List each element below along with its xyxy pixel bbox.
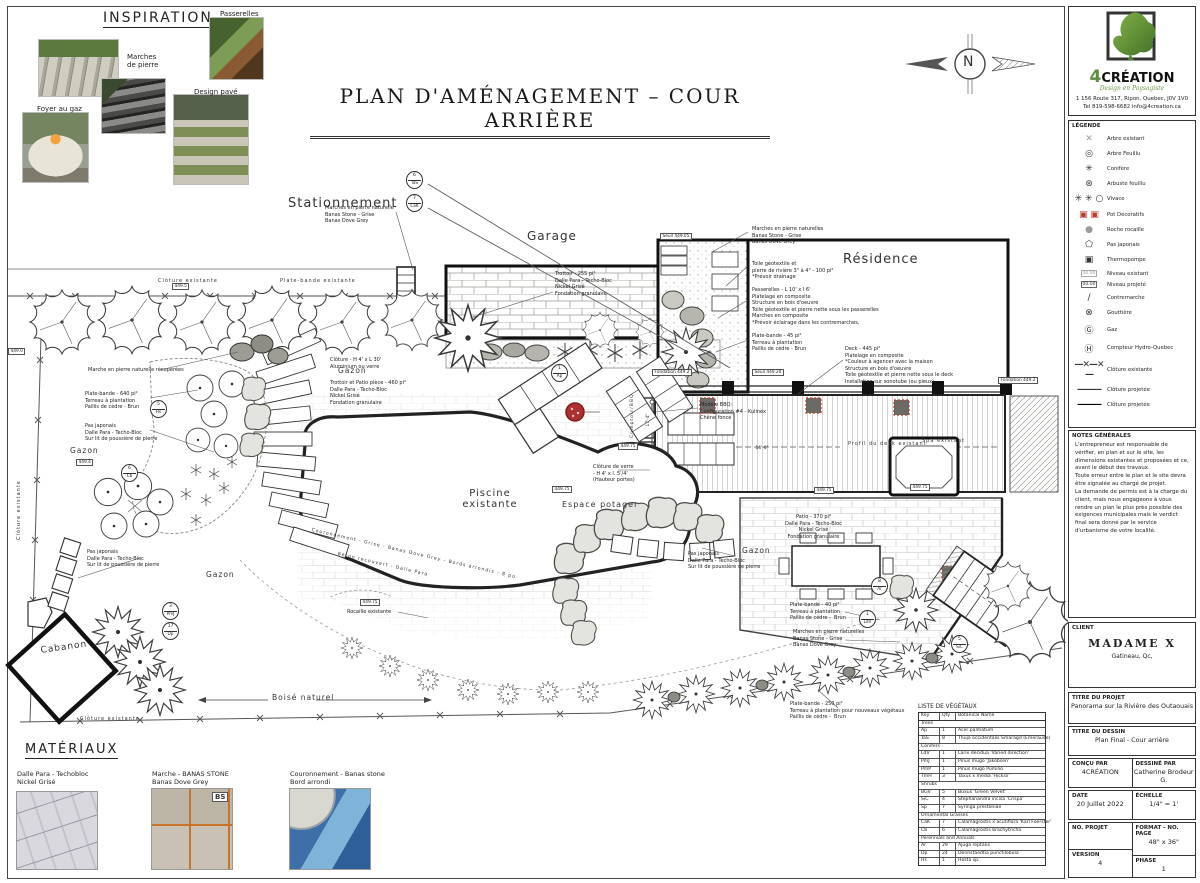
legend-symbol-icon: ▣ — [1071, 255, 1107, 265]
legend-row: Ⓖ Gaz — [1071, 323, 1193, 336]
plant-key: SiC — [919, 797, 940, 804]
client-name: MADAME X — [1069, 637, 1195, 650]
annotation: Clôture - H 4' x L 30' Aluminium ou verr… — [330, 357, 381, 370]
plant-key: CaK — [919, 820, 940, 827]
level-marker: Seuil 449.20 — [752, 369, 784, 376]
legend-label: Thermopompe — [1107, 257, 1146, 263]
level-marker: Fondation 449.2 — [998, 377, 1038, 384]
plan-label: Clôture existante — [80, 716, 140, 722]
drawing-title: Plan Final - Cour arrière — [1069, 735, 1195, 746]
plant-key: Hs — [919, 858, 940, 865]
legend-symbol-icon: ⬠ — [1071, 240, 1107, 250]
callout-key: SiC — [953, 644, 966, 649]
callout-qty: 6 — [407, 172, 422, 179]
plant-name: Calamagrostis brachytricha — [956, 828, 1045, 835]
legend-row: ✳ Conifère — [1071, 164, 1193, 174]
plant-row: Dp 24 Dennstaedtia punctilobula — [919, 850, 1045, 858]
general-notes-body: L'entrepreneur est responsable de vérifi… — [1069, 439, 1195, 539]
level-marker: Fondation 449.2 — [652, 369, 692, 376]
annotation: Plate-bande - 40 pi² Terreau à plantatio… — [790, 602, 846, 622]
plan-label: Comptoir/BBQ — [630, 393, 635, 438]
plant-qty: 7 — [940, 805, 956, 812]
phase-value: 1 — [1133, 864, 1196, 873]
plant-row: PmJ 1 Pinus mugo 'Jakobsen' — [919, 758, 1045, 766]
plant-callout: 5 Hs — [150, 400, 167, 418]
plan-label: Résidence — [843, 252, 918, 267]
legend-symbol-icon: Ⓗ — [1071, 342, 1107, 355]
plant-row: Ap 1 Acer palmatum — [919, 727, 1045, 735]
legend-label: Compteur Hydro-Quebec — [1107, 345, 1173, 351]
plant-name: Ajuga reptans — [956, 843, 1045, 850]
annotation: Pas japonais Dalle Para - Techo-Bloc Sur… — [85, 423, 157, 443]
plant-key: PmP — [919, 767, 940, 774]
legend-row: ✕ Arbre existant — [1071, 134, 1193, 144]
legend-label: Pot Décoratifs — [1107, 212, 1144, 218]
callout-qty: 7 — [407, 195, 422, 202]
callout-qty: 3 — [163, 603, 178, 610]
callout-qty: 6 — [122, 465, 137, 472]
material-label: Marche - BANAS STONE Banas Dove Grey — [152, 770, 229, 787]
plant-callout: 6 Cb — [121, 464, 138, 482]
callout-qty: 17 — [163, 623, 178, 630]
legend-symbol-icon: ∕ — [1071, 293, 1107, 303]
callout-key: Ap — [553, 373, 566, 378]
legend-symbol-icon: ——— — [1071, 385, 1107, 395]
designed-by: 4CRÉATION — [1069, 767, 1132, 776]
plant-name: Larix decidua 'Varied direction' — [956, 751, 1045, 758]
legend-row: ▣ Thermopompe — [1071, 255, 1193, 265]
plant-qty: 1 — [940, 751, 956, 758]
general-notes-title: NOTES GÉNÉRALES — [1069, 431, 1195, 439]
plant-qty: 1 — [940, 858, 956, 865]
project-title-block: TITRE DU PROJET Panorama sur la Rivière … — [1068, 692, 1196, 724]
level-marker: 449.75 — [814, 487, 834, 494]
plant-qty: 8 — [940, 736, 956, 743]
plant-callout: 17 Dp — [162, 622, 179, 640]
material-photo-dalle-para — [17, 792, 97, 869]
plant-name: Pinus mugo 'Jakobsen' — [956, 759, 1045, 766]
legend-symbol-icon: ——— — [1071, 400, 1107, 410]
legend-row: ⬠ Pas japonais — [1071, 240, 1193, 250]
plant-key: Ornamental Grasses — [919, 813, 970, 820]
callout-key: Hs — [152, 409, 165, 414]
plant-callout: 7 CaK — [406, 194, 423, 212]
plant-qty: 7 — [940, 820, 956, 827]
number-block: NO. PROJET VERSION 4 FORMAT - NO. PAGE 4… — [1068, 822, 1196, 878]
callout-key: Dp — [164, 631, 177, 636]
level-marker: 449.75 — [360, 599, 380, 606]
inspiration-photo-dark-steps — [102, 79, 165, 133]
legend-symbol-icon: 00.00 — [1071, 282, 1107, 287]
plant-row: TmH 3 Taxus x media 'Hicksii' — [919, 773, 1045, 781]
scale-value: 1/4" = 1' — [1133, 799, 1196, 808]
plant-key: Shrubs — [919, 782, 939, 789]
client-city: Gatineau, Qc, — [1069, 653, 1195, 660]
inspiration-label: Passerelles — [220, 10, 259, 18]
plan-label: Garage — [527, 229, 577, 243]
legend-row: —✕—✕— Clôture existante — [1071, 360, 1193, 380]
annotation: Rocaille existante — [347, 609, 391, 616]
plant-qty: 1 — [940, 759, 956, 766]
annotation: Patio - 370 pi² Dalle Para - Techo-Bloc … — [785, 514, 842, 540]
legend-label: Arbuste feuillu — [1107, 181, 1146, 187]
inspiration-photo-fire-bowl — [23, 113, 88, 182]
plant-qty: 24 — [940, 851, 956, 858]
plant-row: LdV 1 Larix decidua 'Varied direction' — [919, 750, 1045, 758]
plant-name: Acer palmatum — [956, 728, 1045, 735]
legend-symbol-icon: ● — [1071, 225, 1107, 235]
annotation: Pas japonais Dalle Para - Techo-Bloc Sur… — [87, 549, 159, 569]
plant-row: Hs 1 Hosta sp. — [919, 857, 1045, 865]
annotation: Plate-bande - 250 pi² Terreau à plantati… — [790, 701, 904, 721]
inspiration-photo-paver-design — [174, 95, 248, 184]
plant-key: Sp — [919, 805, 940, 812]
level-marker: 449.5 — [172, 283, 189, 290]
annotation: Marche en pierre naturelle récupérées — [88, 367, 184, 374]
plant-row: Ornamental Grasses — [919, 812, 1045, 820]
legend-label: Pas japonais — [1107, 242, 1140, 248]
plant-list: LISTE DE VÉGÉTAUX Key Qty Botanical Name… — [918, 704, 1046, 866]
plant-key: Dp — [919, 851, 940, 858]
annotation: Plate-bande - 640 pi² Terreau à plantati… — [85, 391, 139, 411]
legend-symbol-icon: ▣ ▣ — [1071, 210, 1107, 220]
legend-row: ◎ Arbre Feuillu — [1071, 149, 1193, 159]
plant-list-title: LISTE DE VÉGÉTAUX — [918, 704, 1046, 710]
plan-label: Piscine existante — [450, 488, 530, 510]
legend-row: ● Roche rocaille — [1071, 225, 1193, 235]
date-value: 20 Juillet 2022 — [1069, 799, 1132, 808]
callout-qty: 5 — [952, 636, 967, 643]
plant-row: Ar 29 Ajuga reptans — [919, 842, 1045, 850]
plant-callout: 6 TaS — [406, 171, 423, 189]
level-marker: 449.75 — [910, 484, 930, 491]
plant-key: Perennials and Annuals — [919, 836, 977, 843]
plant-name: Hosta sp. — [956, 858, 1045, 865]
annotation: Plate-bande - 45 pi² Terreau à plantatio… — [752, 333, 806, 353]
banas-stone-logo: BS — [212, 792, 228, 802]
brand-name: 4CRÉATION — [1069, 67, 1195, 87]
plan-label: N — [963, 54, 974, 70]
plant-callout: 5 SiC — [951, 635, 968, 653]
annotation: Trottoir et Patio pièce - 460 pi² Dalle … — [330, 380, 406, 406]
inspiration-title: INSPIRATION — [103, 10, 213, 28]
drawing-sheet: PLAN D'AMÉNAGEMENT – COUR ARRIÈRE INSPIR… — [0, 0, 1200, 883]
legend-block: LÉGENDE ✕ Arbre existant ◎ Arbre Feuillu… — [1068, 120, 1196, 428]
inspiration-label: Foyer au gaz — [37, 105, 82, 113]
plant-key: Conifers — [919, 744, 942, 751]
designer-block: CONÇU PAR 4CRÉATION DESSINÉ PAR Catherin… — [1068, 758, 1196, 788]
legend-label: Contremarche — [1107, 295, 1145, 301]
plant-row: Shrubs — [919, 781, 1045, 789]
plant-list-header: Key Qty Botanical Name — [919, 713, 1045, 721]
plant-qty: 1 — [940, 767, 956, 774]
plant-name: Pinus mugo Pumilio — [956, 767, 1045, 774]
plant-qty: 4 — [940, 797, 956, 804]
plant-row: BGV 5 Buxus 'Green Velvet' — [919, 789, 1045, 797]
plant-key: Ar — [919, 843, 940, 850]
plant-callout: 1 Ap — [551, 364, 568, 382]
legend-row: ⊗ Gouttière — [1071, 308, 1193, 318]
level-marker: 14'-6" — [754, 446, 770, 451]
legend-row: ——— Clôture projetée — [1071, 400, 1193, 410]
callout-key: CaK — [408, 203, 421, 208]
legend-symbol-icon: ⊗ — [1071, 308, 1107, 318]
plant-name: Stephanandra incisa 'Crispa' — [956, 797, 1045, 804]
legend-symbol-icon: —✕—✕— — [1071, 360, 1107, 380]
annotation: Trottoir - 255 pi² Dalle Para - Techo-Bl… — [555, 271, 612, 297]
plant-qty: 3 — [940, 774, 956, 781]
legend-label: Conifère — [1107, 166, 1129, 172]
plant-row: Trees — [919, 721, 1045, 728]
plant-row: TaS 8 Thuja occidentalis Smaragd (Emerau… — [919, 735, 1045, 743]
legend-row: ——— Clôture projetée — [1071, 385, 1193, 395]
annotation: Marches en pierre naturelle Banas Stone … — [325, 205, 394, 225]
date-scale-block: DATE 20 Juillet 2022 ÉCHELLE 1/4" = 1' — [1068, 790, 1196, 820]
legend-row: ▣ ▣ Pot Décoratifs — [1071, 210, 1193, 220]
level-marker: 449.75 — [618, 443, 638, 450]
plan-label: Gazon — [70, 446, 99, 455]
legend-label: Gaz — [1107, 327, 1117, 333]
legend-label: Vivace — [1107, 196, 1125, 202]
plan-label: Plate-bande existante — [280, 278, 356, 284]
brand-tagline: Design en Paysagiste — [1069, 85, 1195, 92]
page-title: PLAN D'AMÉNAGEMENT – COUR ARRIÈRE — [310, 84, 770, 139]
legend-label: Clôture existante — [1107, 367, 1152, 373]
annotation: Passerelles - L 10' x l 6' Platelage en … — [752, 287, 879, 326]
plant-name: Buxus 'Green Velvet' — [956, 790, 1045, 797]
plant-key: TmH — [919, 774, 940, 781]
inspiration-label: Design pavé — [194, 88, 238, 96]
legend-title: LÉGENDE — [1069, 121, 1195, 129]
plant-name: Taxus x media 'Hicksii' — [956, 774, 1045, 781]
legend-symbol-icon: ✳ ✳ ○ — [1071, 194, 1107, 204]
plan-label: Gazon — [206, 570, 235, 579]
legend-symbol-icon: Ⓖ — [1071, 323, 1107, 336]
plant-row: Cb 6 Calamagrostis brachytricha — [919, 827, 1045, 835]
plant-qty: 1 — [940, 728, 956, 735]
legend-row: ⊛ Arbuste feuillu — [1071, 179, 1193, 189]
annotation: Toile géotextile et pierre de rivière 3"… — [752, 261, 833, 281]
company-address: 1 156 Route 317, Ripon, Quebec, J0V 1V0 … — [1069, 95, 1195, 111]
plant-row: Sp 7 Syringa prestoniae — [919, 804, 1045, 812]
plan-label: Boisé naturel — [272, 693, 334, 702]
legend-symbol-icon: ✳ — [1071, 164, 1107, 174]
annotation: Clôture de verre - H 4' x l. 5'/4' (Haut… — [593, 464, 635, 484]
general-notes-block: NOTES GÉNÉRALES L'entrepreneur est respo… — [1068, 430, 1196, 618]
plant-qty: 5 — [940, 790, 956, 797]
callout-qty: 1 — [552, 365, 567, 372]
plant-key: TaS — [919, 736, 940, 743]
legend-row: 00.00 Niveau existant — [1071, 271, 1193, 277]
plant-row: Conifers — [919, 743, 1045, 751]
callout-qty: 8 — [872, 578, 887, 585]
material-label: Couronnement - Banas stone Bord arrondi — [290, 770, 385, 787]
plant-name: Dennstaedtia punctilobula — [956, 851, 1045, 858]
legend-symbol-icon: 00.00 — [1071, 271, 1107, 276]
legend-symbol-icon: ◎ — [1071, 149, 1107, 159]
legend-row: 00.00 Niveau projeté — [1071, 282, 1193, 288]
plant-name: Thuja occidentalis Smaragd (Emeraude) — [956, 736, 1052, 743]
material-photo-couronnement — [290, 789, 370, 869]
plant-key: PmJ — [919, 759, 940, 766]
legend-label: Roche rocaille — [1107, 227, 1144, 233]
callout-key: TaS — [408, 180, 421, 185]
materials-title: MATÉRIAUX — [25, 742, 118, 759]
legend-label: Niveau projeté — [1107, 282, 1146, 288]
legend-label: Niveau existant — [1107, 271, 1148, 277]
legend-label: Gouttière — [1107, 310, 1132, 316]
plant-key: BGV — [919, 790, 940, 797]
plant-key: Ap — [919, 728, 940, 735]
legend-label: Arbre existant — [1107, 136, 1144, 142]
plant-name: Calamagrostis x acutiflora 'Karl Foerste… — [956, 820, 1053, 827]
legend-label: Clôture projetée — [1107, 402, 1150, 408]
callout-key: LdV — [861, 619, 874, 624]
legend-row: ✳ ✳ ○ Vivace — [1071, 194, 1193, 204]
level-marker: 449.0 — [8, 348, 25, 355]
plant-callout: 8 Ar — [871, 577, 888, 595]
legend-symbol-icon: ✕ — [1071, 134, 1107, 144]
annotation: Modèle BBQ: Configuration #4 - Kulinex C… — [700, 402, 766, 422]
plant-row: Perennials and Annuals — [919, 835, 1045, 843]
project-number — [1069, 831, 1132, 846]
legend-row: Ⓗ Compteur Hydro-Quebec — [1071, 342, 1193, 355]
drawn-by: Catherine Brodeur G. — [1133, 767, 1196, 784]
inspiration-label: Marches de pierre — [127, 53, 158, 70]
plant-key: Cb — [919, 828, 940, 835]
legend-label: Arbre Feuillu — [1107, 151, 1140, 157]
plant-key: LdV — [919, 751, 940, 758]
plan-label: Espace potager — [562, 500, 638, 509]
plant-callout: 3 PmJ — [162, 602, 179, 620]
company-logo-icon — [1072, 10, 1192, 62]
level-marker: 17'-4" — [646, 412, 651, 428]
plant-qty: 6 — [940, 828, 956, 835]
plant-qty: 29 — [940, 843, 956, 850]
legend-symbol-icon: ⊛ — [1071, 179, 1107, 189]
annotation: Deck - 445 pi² Platelage en composite *C… — [845, 346, 953, 385]
inspiration-photo-walkway — [210, 18, 263, 79]
material-label: Dalle Para - Techobloc Nickel Grisé — [17, 770, 88, 787]
callout-key: PmJ — [164, 611, 177, 616]
version-value: 4 — [1069, 858, 1132, 867]
level-marker: Seuil 449.05 — [660, 233, 692, 240]
plan-label: Clôture existante — [16, 480, 22, 540]
plant-row: PmP 1 Pinus mugo Pumilio — [919, 766, 1045, 774]
client-block: CLIENT MADAME X Gatineau, Qc, — [1068, 622, 1196, 688]
callout-qty: 5 — [151, 401, 166, 408]
plant-list-rows: Trees Ap 1 Acer palmatum TaS 8 Thuja occ… — [919, 721, 1045, 865]
legend-label: Clôture projetée — [1107, 387, 1150, 393]
callout-key: Ar — [873, 586, 886, 591]
project-title: Panorama sur la Rivière des Outaouais — [1069, 701, 1195, 712]
annotation: Marches en pierre naturelles Banas Stone… — [793, 629, 864, 649]
plant-name: Syringa prestoniae — [956, 805, 1045, 812]
plan-label: Profil du deck existant — [848, 441, 927, 447]
callout-qty: 1 — [860, 611, 875, 618]
plant-callout: 1 LdV — [859, 610, 876, 628]
plant-row: CaK 7 Calamagrostis x acutiflora 'Karl F… — [919, 819, 1045, 827]
drawing-title-block: TITRE DU DESSIN Plan Final - Cour arrièr… — [1068, 726, 1196, 756]
legend-row: ∕ Contremarche — [1071, 293, 1193, 303]
logo-block: 4CRÉATION Design en Paysagiste 1 156 Rou… — [1068, 6, 1196, 116]
annotation: Pas japonais Dalle Para - Techo-Bloc Sur… — [688, 551, 760, 571]
plant-row: SiC 4 Stephanandra incisa 'Crispa' — [919, 796, 1045, 804]
plant-key: Trees — [919, 721, 935, 728]
level-marker: 449.75 — [552, 486, 572, 493]
level-marker: 449.4 — [76, 459, 93, 466]
legend-rows: ✕ Arbre existant ◎ Arbre Feuillu ✳ Conif… — [1069, 129, 1195, 415]
callout-key: Cb — [123, 473, 136, 478]
format-value: 48" x 36" — [1133, 837, 1196, 852]
plan-label: Spa existant — [922, 438, 965, 444]
annotation: Marches en pierre naturelles Banas Stone… — [752, 226, 823, 246]
